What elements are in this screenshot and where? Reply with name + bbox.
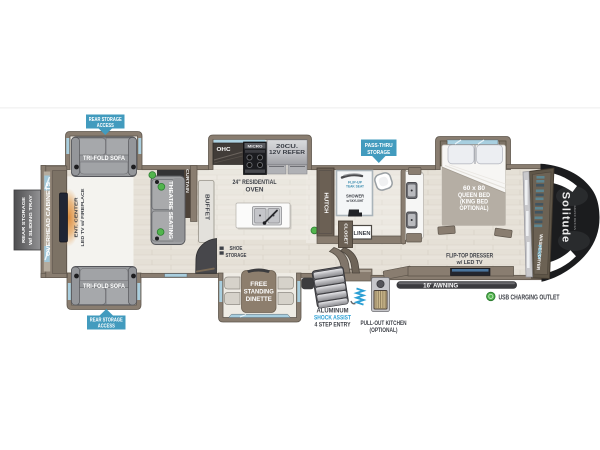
svg-text:16' AWNING: 16' AWNING [423, 284, 458, 290]
svg-text:W/ SLIDING TRAY: W/ SLIDING TRAY [28, 195, 33, 245]
svg-text:FREE: FREE [250, 281, 268, 288]
svg-text:FLIP-TOP DRESSER: FLIP-TOP DRESSER [446, 253, 493, 260]
svg-text:CLOSET: CLOSET [343, 223, 348, 245]
svg-text:USB CHARGING OUTLET: USB CHARGING OUTLET [499, 294, 561, 301]
svg-text:TRI-FOLD SOFA: TRI-FOLD SOFA [83, 155, 125, 162]
svg-text:OVEN: OVEN [246, 187, 264, 194]
svg-text:TEAK SEAT: TEAK SEAT [346, 185, 365, 189]
svg-text:w/ LED TV: w/ LED TV [456, 260, 483, 266]
svg-text:ALUMINUM: ALUMINUM [317, 308, 349, 315]
svg-text:OVERHEAD CABINETS: OVERHEAD CABINETS [46, 181, 52, 256]
svg-text:CURTAIN: CURTAIN [185, 169, 190, 194]
svg-text:OHC: OHC [217, 147, 231, 153]
svg-text:QUEEN BED: QUEEN BED [458, 192, 490, 199]
svg-text:SHOWER: SHOWER [346, 193, 365, 198]
svg-text:MICRO: MICRO [248, 144, 263, 149]
svg-text:DINETTE: DINETTE [246, 296, 273, 303]
svg-text:24" RESIDENTIAL: 24" RESIDENTIAL [233, 179, 277, 186]
svg-text:LINEN: LINEN [354, 231, 371, 237]
svg-text:THEATRE SEATING: THEATRE SEATING [167, 181, 173, 239]
svg-text:REAR STORAGE: REAR STORAGE [21, 197, 26, 243]
svg-text:STORAGE: STORAGE [367, 150, 390, 156]
svg-text:LED TV w/ FIREPLACE: LED TV w/ FIREPLACE [80, 188, 86, 247]
svg-text:STANDING: STANDING [244, 288, 274, 295]
svg-text:PULL-OUT KITCHEN: PULL-OUT KITCHEN [361, 320, 407, 327]
svg-text:ACCESS: ACCESS [97, 123, 115, 129]
svg-text:(OPTIONAL): (OPTIONAL) [370, 327, 398, 334]
svg-text:PASS-THRU: PASS-THRU [365, 143, 393, 149]
svg-text:SHOE: SHOE [230, 246, 243, 252]
svg-text:GRAND DESIGN: GRAND DESIGN [573, 206, 577, 231]
svg-text:HUTCH: HUTCH [322, 193, 328, 214]
svg-text:4 STEP ENTRY: 4 STEP ENTRY [315, 322, 351, 329]
svg-text:STORAGE: STORAGE [226, 253, 247, 259]
svg-text:ACCESS: ACCESS [98, 324, 116, 330]
svg-text:w/ SKYLIGHT: w/ SKYLIGHT [346, 199, 364, 203]
svg-text:TRI-FOLD SOFA: TRI-FOLD SOFA [83, 283, 125, 290]
svg-text:12V REFER: 12V REFER [269, 150, 305, 156]
svg-text:SHOCK ASSIST: SHOCK ASSIST [314, 315, 351, 322]
svg-text:OPTIONAL): OPTIONAL) [460, 206, 489, 212]
svg-text:(KING BED: (KING BED [460, 199, 489, 205]
svg-text:BUFFET: BUFFET [203, 194, 209, 221]
svg-text:ENT. CENTER: ENT. CENTER [73, 197, 79, 238]
svg-text:Solitude: Solitude [560, 192, 572, 243]
